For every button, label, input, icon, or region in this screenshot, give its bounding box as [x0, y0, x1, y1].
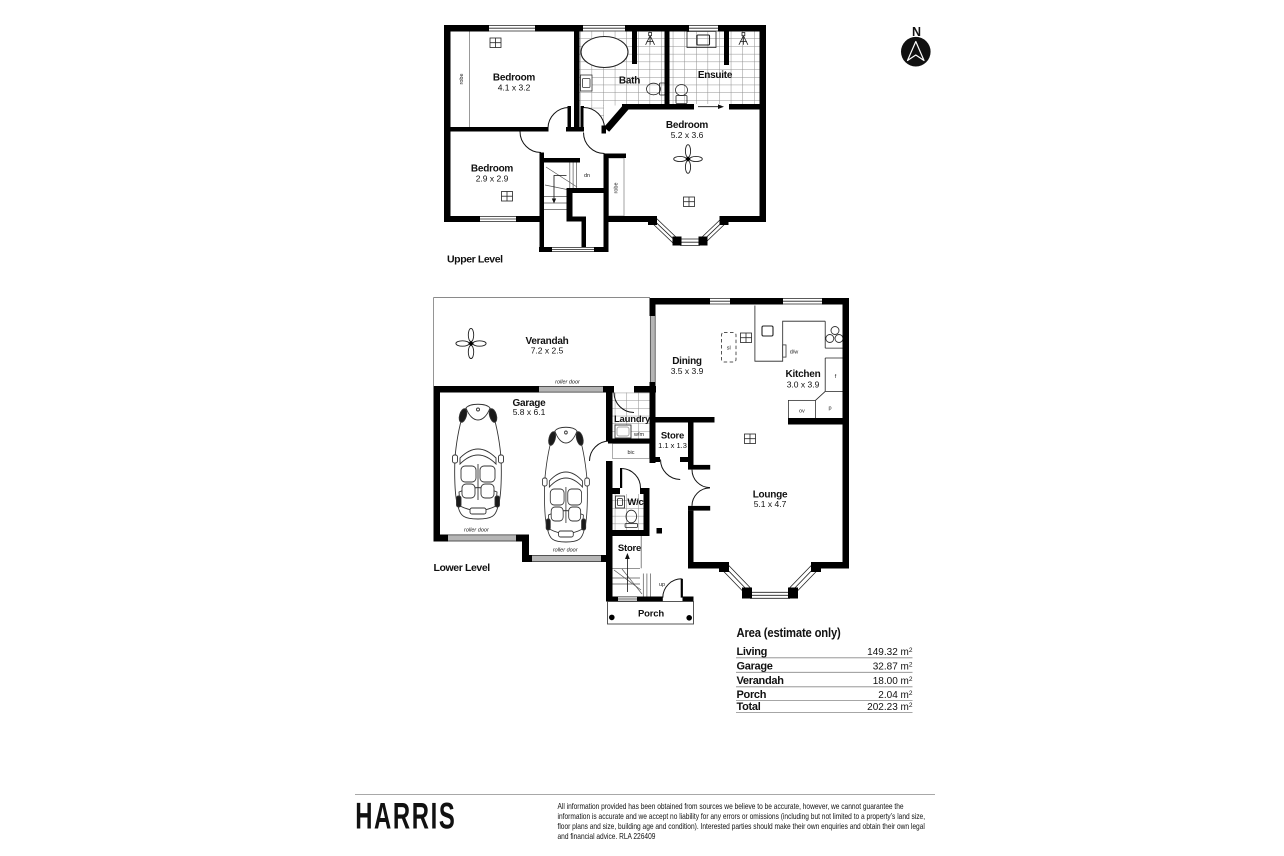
svg-text:18.00 m2: 18.00 m2	[873, 676, 913, 687]
svg-text:HARRIS: HARRIS	[355, 795, 456, 837]
svg-text:d/w: d/w	[790, 350, 799, 356]
svg-text:Total: Total	[737, 701, 761, 713]
svg-text:w/m: w/m	[633, 432, 645, 438]
svg-text:Store: Store	[661, 431, 684, 442]
svg-text:Area (estimate only): Area (estimate only)	[737, 625, 841, 640]
svg-text:All information provided has b: All information provided has been obtain…	[558, 802, 904, 812]
svg-text:sl: sl	[727, 346, 731, 352]
svg-text:Upper Level: Upper Level	[447, 253, 503, 265]
svg-text:N: N	[912, 25, 921, 39]
svg-text:ov: ov	[799, 409, 805, 415]
svg-text:p: p	[828, 406, 831, 412]
svg-text:W/c: W/c	[627, 497, 643, 508]
svg-text:3.5 x 3.9: 3.5 x 3.9	[671, 366, 704, 376]
svg-text:5.2 x 3.6: 5.2 x 3.6	[671, 130, 704, 140]
svg-text:information is accurate and we: information is accurate and we accept no…	[558, 811, 926, 821]
svg-text:2.04 m2: 2.04 m2	[878, 690, 913, 701]
svg-text:202.23 m2: 202.23 m2	[867, 702, 913, 713]
svg-text:Lower Level: Lower Level	[434, 562, 491, 574]
svg-text:Bath: Bath	[619, 76, 640, 87]
svg-text:floor plans and size, building: floor plans and size, building age and c…	[558, 821, 926, 831]
svg-text:5.8 x 6.1: 5.8 x 6.1	[513, 407, 546, 417]
svg-text:Ensuite: Ensuite	[698, 70, 733, 81]
svg-text:Porch: Porch	[638, 609, 664, 620]
svg-text:roller door: roller door	[553, 548, 579, 554]
svg-text:4.1 x 3.2: 4.1 x 3.2	[498, 83, 531, 93]
svg-text:7.2 x 2.5: 7.2 x 2.5	[531, 346, 564, 356]
svg-text:32.87 m2: 32.87 m2	[873, 662, 913, 673]
svg-text:robe: robe	[459, 73, 465, 84]
svg-text:5.1 x 4.7: 5.1 x 4.7	[754, 499, 787, 509]
svg-text:and financial advice. RLA 2264: and financial advice. RLA 226409	[558, 831, 656, 841]
svg-text:bic: bic	[627, 450, 634, 456]
svg-text:Living: Living	[737, 646, 768, 658]
svg-text:149.32 m2: 149.32 m2	[867, 647, 913, 658]
svg-text:2.9 x 2.9: 2.9 x 2.9	[476, 174, 509, 184]
svg-text:Laundry: Laundry	[614, 414, 651, 425]
svg-text:up: up	[659, 582, 665, 588]
svg-text:dn: dn	[584, 173, 590, 179]
svg-text:3.0 x 3.9: 3.0 x 3.9	[787, 379, 820, 389]
svg-text:1.1 x 1.3: 1.1 x 1.3	[658, 441, 687, 450]
svg-text:Porch: Porch	[737, 689, 767, 701]
svg-text:roller door: roller door	[464, 528, 490, 534]
svg-text:Garage: Garage	[737, 661, 773, 673]
svg-text:roller door: roller door	[555, 380, 581, 386]
svg-text:Verandah: Verandah	[737, 675, 785, 687]
svg-text:Store: Store	[618, 543, 641, 554]
svg-text:robe: robe	[614, 182, 620, 193]
